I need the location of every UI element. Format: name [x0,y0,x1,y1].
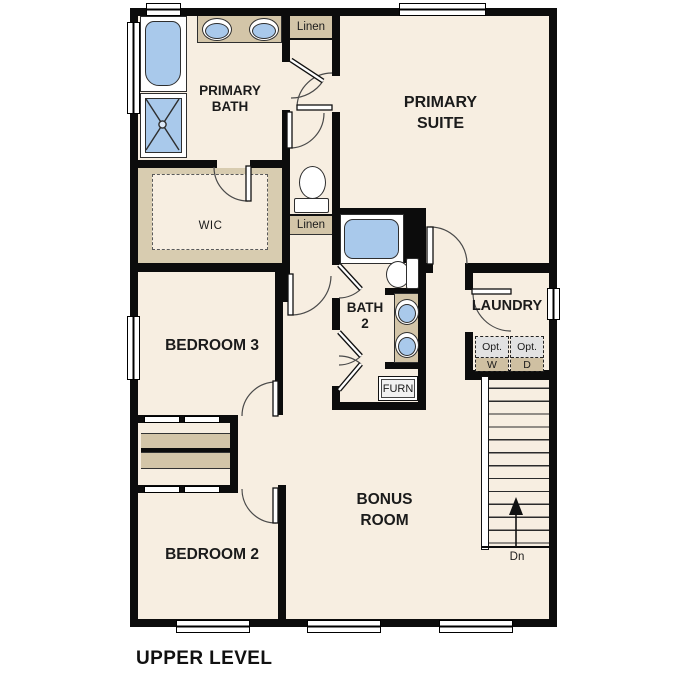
bath2-line1: BATH [336,300,394,316]
washer-opt-label: Opt. [482,341,502,353]
wic-shelf-edge [152,174,268,250]
bathtub-primary-basin [145,21,181,86]
closet-shelf-bottom [141,452,232,469]
closet-opening-top-1 [144,416,180,423]
wall-primarybath-south-a [138,160,217,168]
window-left-tub [127,22,140,114]
sink-primary-2-bowl [252,23,276,39]
wall-wc-left [282,110,290,302]
room-label-bath2: BATH 2 [336,300,394,332]
window-top-suite [399,3,486,16]
wall-laundry-west-1 [465,273,473,290]
closet-opening-bottom-2 [184,486,220,493]
room-label-bedroom2: BEDROOM 2 [138,546,286,564]
wall-tub2-end-fill [403,213,419,263]
linen-lower-label: Linen [297,219,325,231]
dn-label: Dn [510,551,525,563]
wall-bath2-east [418,208,426,410]
primary-suite-line1: PRIMARY [368,93,513,114]
stair-rail [481,376,489,550]
furnace-label: FURN [383,383,414,395]
page-title: UPPER LEVEL [136,648,272,670]
furnace-label-frame: FURN [381,379,415,398]
stair-bottom-edge [481,546,549,548]
wic-label: WIC [199,220,223,232]
primary-bath-line1: PRIMARY [160,83,300,99]
plan-title-text: UPPER LEVEL [136,648,272,669]
wall-linen1-right [332,16,340,76]
room-label-wic: WIC [178,220,243,232]
wall-linen1-left [282,16,290,62]
floor-plan: Linen Linen FURN Opt. W Opt. D [0,0,687,687]
closet-opening-bottom-1 [144,486,180,493]
window-bottom-bedroom2 [176,620,250,633]
wall-wic-south [138,263,290,272]
furnace-box: FURN [378,376,418,401]
dryer-opt-label: Opt. [517,341,537,353]
room-label-bedroom3: BEDROOM 3 [138,337,286,355]
room-label-laundry: LAUNDRY [464,298,550,315]
room-label-primary-suite: PRIMARY SUITE [368,93,513,135]
closet-opening-top-2 [184,416,220,423]
wall-laundry-north [465,263,549,273]
window-bottom-bonus1 [307,620,381,633]
washer-letter: W [487,359,497,371]
wall-bath2-stub-lower [385,362,426,369]
sink-primary-1-bowl [205,23,229,39]
sink-bath2-2-bowl [398,337,416,356]
window-bottom-bonus2 [439,620,513,633]
primary-suite-line2: SUITE [368,114,513,135]
room-label-bonus-room: BONUS ROOM [322,490,447,532]
washer-optional: Opt. W [475,336,509,372]
window-top-bath [146,3,181,16]
stair-treads [489,376,549,548]
toilet-primary-tank [294,198,329,213]
wall-outer-top [130,8,557,16]
room-label-primary-bath: PRIMARY BATH [160,83,300,115]
wall-bath2-west-1 [332,208,340,265]
bonus-room-line1: BONUS [322,490,447,511]
linen-upper-label: Linen [297,21,325,33]
wall-wc-right [332,112,340,215]
bathtub-bath2-basin [344,219,399,259]
bath2-line2: 2 [336,316,394,332]
stairs-dn-label: Dn [500,551,534,563]
linen-closet-lower: Linen [290,214,332,235]
bonus-room-line2: ROOM [322,511,447,532]
wall-bath2-south [332,402,426,410]
bedroom2-label: BEDROOM 2 [138,546,286,564]
dryer-optional: Opt. D [510,336,544,372]
toilet-primary-bowl [299,166,326,199]
laundry-label: LAUNDRY [464,298,550,315]
bedroom3-label: BEDROOM 3 [138,337,286,355]
wall-closet-east [230,423,238,485]
primary-bath-line2: BATH [160,99,300,115]
linen-closet-upper: Linen [290,16,332,40]
wall-primarybath-south-b [250,160,290,168]
sink-bath2-1-bowl [398,304,416,323]
dryer-letter: D [523,359,531,371]
toilet-bath2-tank [406,258,419,289]
